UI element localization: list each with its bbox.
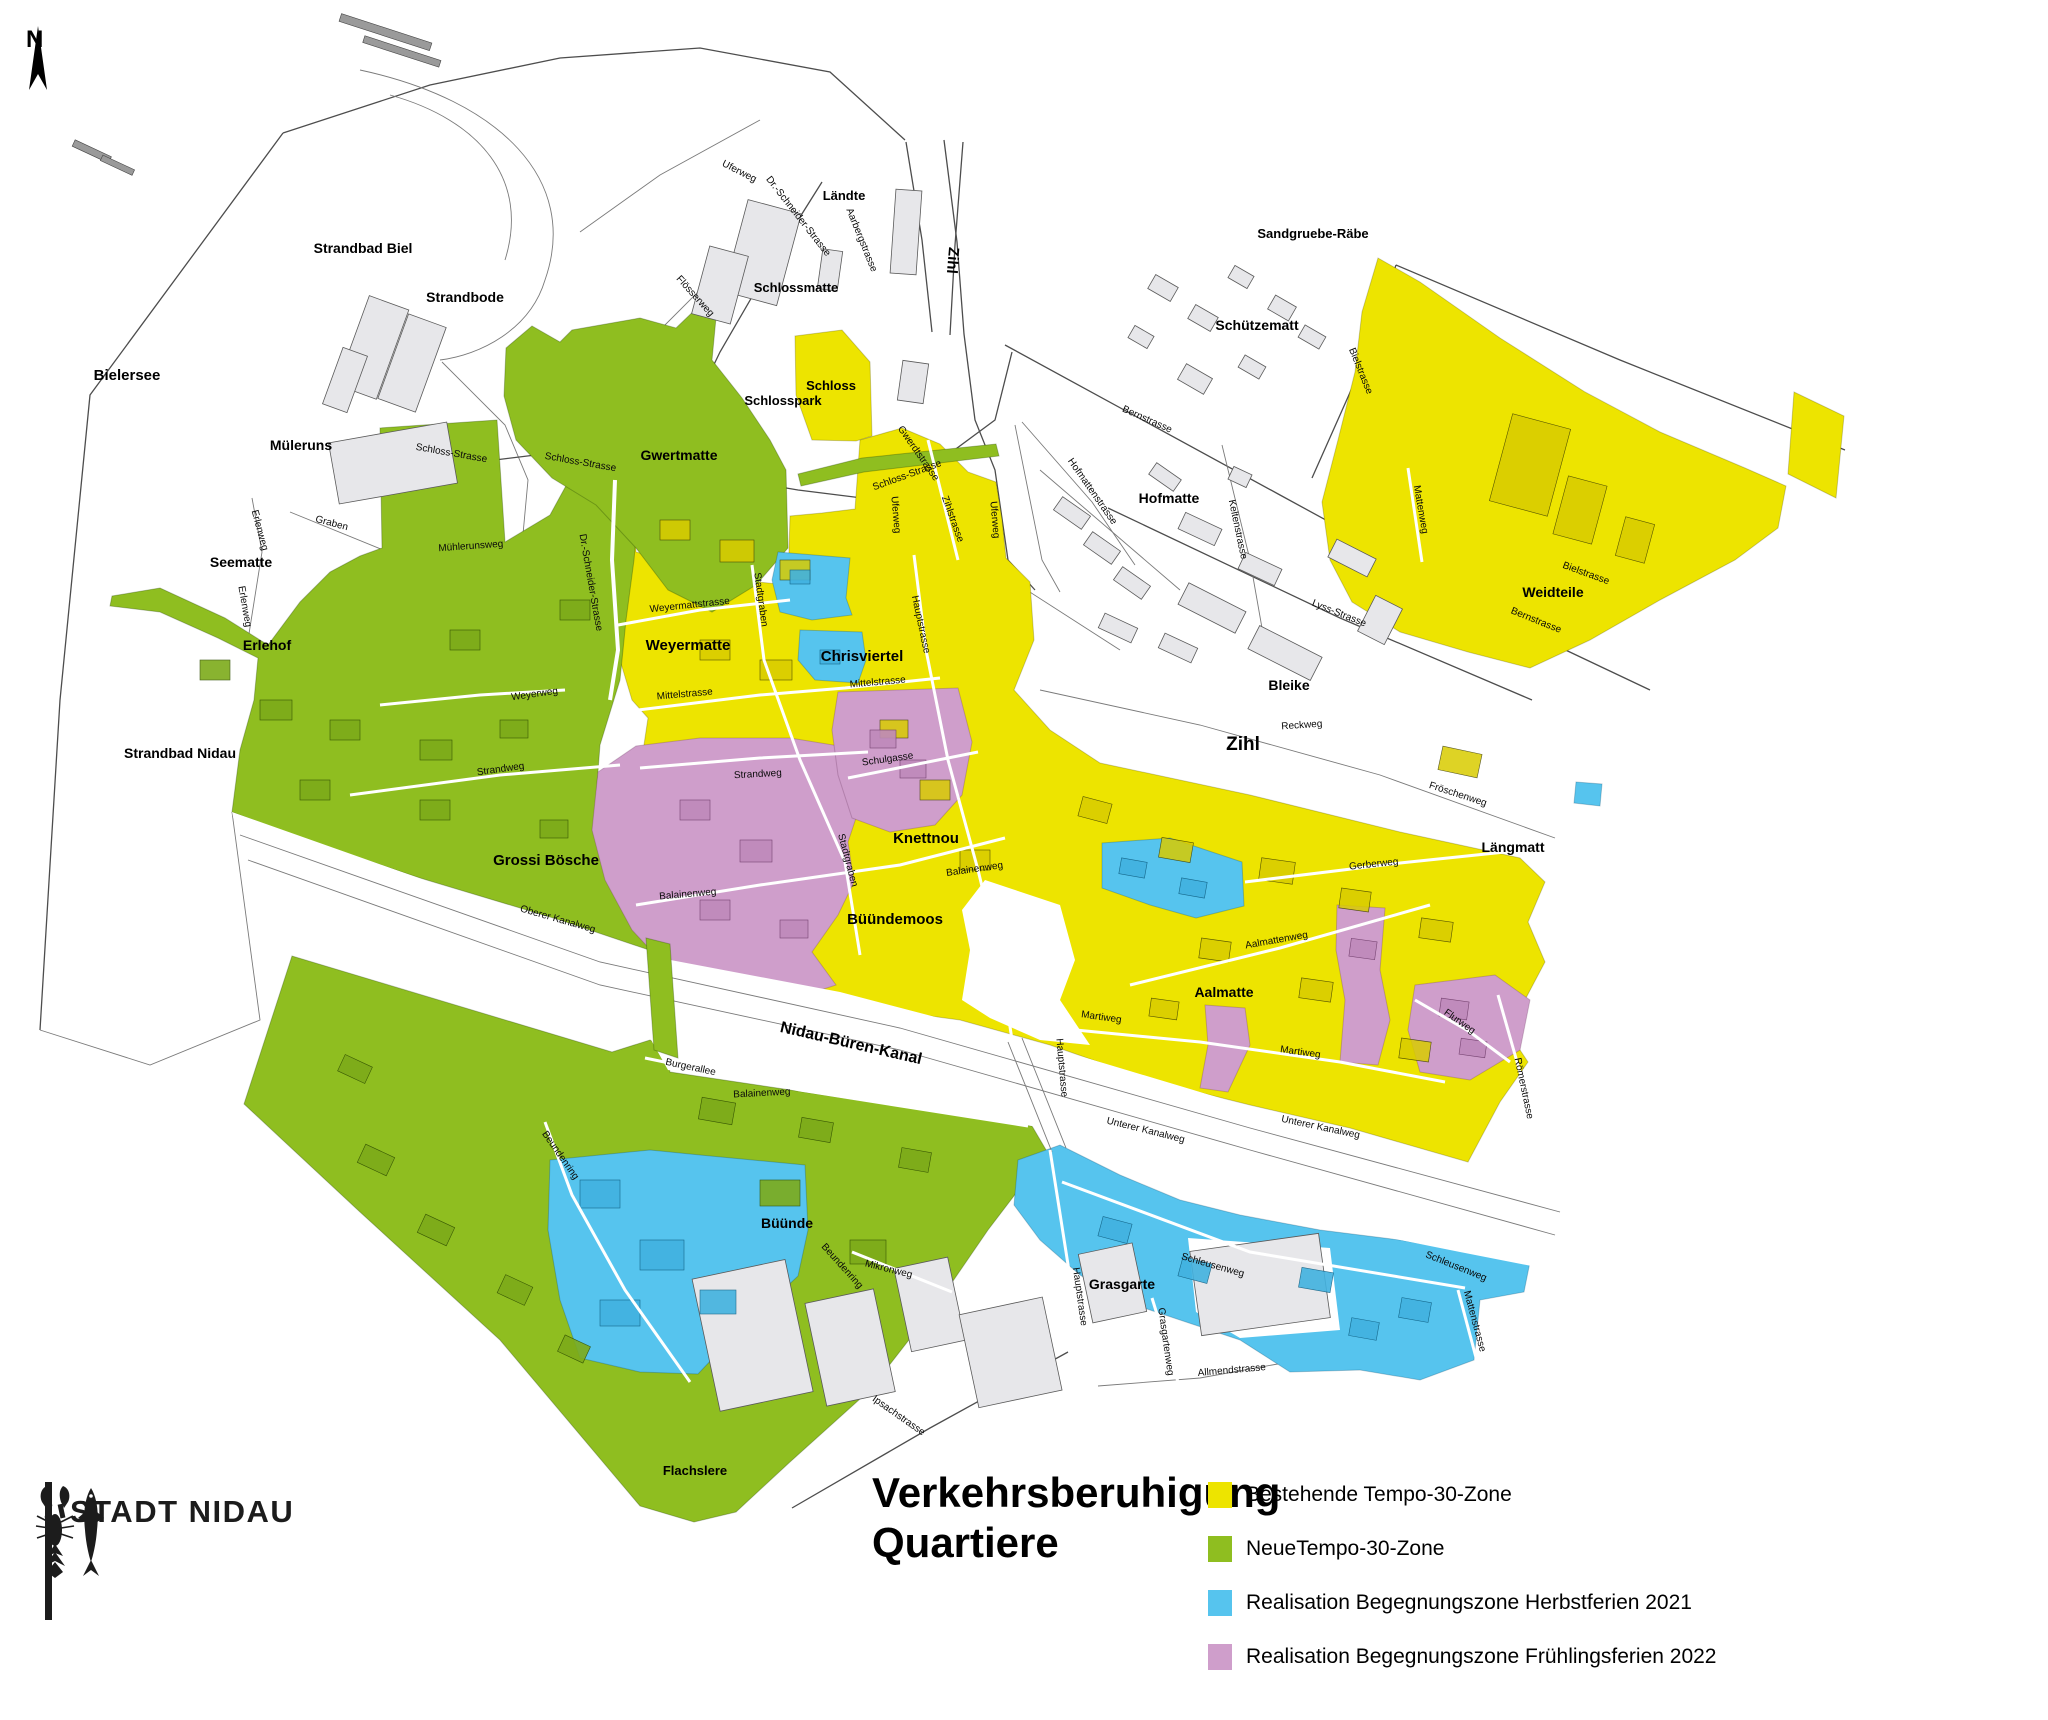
street-label: Römerstrasse (1512, 1057, 1536, 1121)
legend-row-meet2021: Realisation Begegnungszone Herbstferien … (1208, 1590, 1717, 1616)
street-label: Reckweg (1281, 719, 1323, 733)
street-label: Allmendstrasse (1197, 1362, 1266, 1379)
area-label: Büündemoos (847, 911, 943, 928)
area-label: Schützematt (1215, 317, 1299, 333)
street-label: Ipsachstrasse (870, 1394, 927, 1439)
street-label: Bernstrasse (1120, 404, 1174, 436)
area-label: Chrisviertel (821, 648, 904, 665)
north-arrow-icon (24, 24, 64, 104)
north-arrow: N (24, 24, 64, 54)
area-label: Strandbode (426, 289, 504, 305)
legend-label-new30: NeueTempo-30-Zone (1246, 1537, 1444, 1561)
street-label: Graben (314, 514, 349, 533)
legend-swatch-existing30 (1208, 1482, 1232, 1508)
area-label: Knettnou (893, 830, 959, 847)
street-label: Fröschenweg (1428, 780, 1488, 809)
legend-swatch-new30 (1208, 1536, 1232, 1562)
legend-row-new30: NeueTempo-30-Zone (1208, 1536, 1717, 1562)
area-label: Schlosspark (744, 393, 822, 408)
area-label: Strandbad Biel (314, 240, 413, 256)
legend: Bestehende Tempo-30-Zone NeueTempo-30-Zo… (1208, 1482, 1717, 1698)
area-label: Seematte (210, 554, 272, 570)
legend-swatch-meet2022 (1208, 1644, 1232, 1670)
street-label: Erlenweg (249, 509, 270, 552)
area-label: Ländte (823, 188, 866, 203)
legend-row-meet2022: Realisation Begegnungszone Frühlingsferi… (1208, 1644, 1717, 1670)
area-label: Schloss (806, 378, 856, 393)
area-label: Bleike (1268, 677, 1309, 693)
street-label: Uferweg (720, 158, 758, 185)
crayfish-fish-icon (33, 1482, 108, 1622)
map-canvas: UferwegDr.-Schneider-StrasseFlösserwegAa… (0, 0, 2048, 1720)
area-label: Aalmatte (1194, 984, 1253, 1000)
area-label: Gwertmatte (640, 447, 717, 463)
area-label: Schlossmatte (754, 280, 839, 295)
area-label: Weidteile (1522, 584, 1583, 600)
area-label: Längmatt (1482, 839, 1545, 855)
area-label: Müleruns (270, 437, 332, 453)
area-label: Strandbad Nidau (124, 745, 236, 761)
area-label: Zihl (1226, 734, 1260, 755)
legend-label-meet2022: Realisation Begegnungszone Frühlingsferi… (1246, 1645, 1717, 1669)
legend-swatch-meet2021 (1208, 1590, 1232, 1616)
legend-row-existing30: Bestehende Tempo-30-Zone (1208, 1482, 1717, 1508)
legend-label-meet2021: Realisation Begegnungszone Herbstferien … (1246, 1591, 1692, 1615)
area-label: Zihl (943, 246, 962, 274)
area-label: Weyermatte (646, 637, 731, 654)
area-label: Erlehof (243, 637, 292, 653)
legend-label-existing30: Bestehende Tempo-30-Zone (1246, 1483, 1512, 1507)
area-label: Sandgruebe-Räbe (1257, 226, 1368, 241)
area-label: Büünde (761, 1215, 813, 1231)
street-label: Erlenweg (235, 585, 253, 628)
map-page: UferwegDr.-Schneider-StrasseFlösserwegAa… (0, 0, 2048, 1720)
street-label: Aarbergstrasse (844, 207, 880, 274)
area-label: Flachslere (663, 1463, 727, 1478)
zone-meet2021-laengmatt-spot (1574, 782, 1602, 806)
area-label: Bielersee (94, 367, 161, 384)
area-label: Grossi Bösche (493, 852, 599, 869)
street-label: Keltenstrasse (1226, 499, 1249, 561)
area-label: Grasgarte (1089, 1276, 1155, 1292)
area-label: Hofmatte (1139, 490, 1200, 506)
stadt-nidau-logo: STADT NIDAU (33, 1482, 294, 1620)
zone-existing30-weidteile-strip (1788, 392, 1844, 498)
